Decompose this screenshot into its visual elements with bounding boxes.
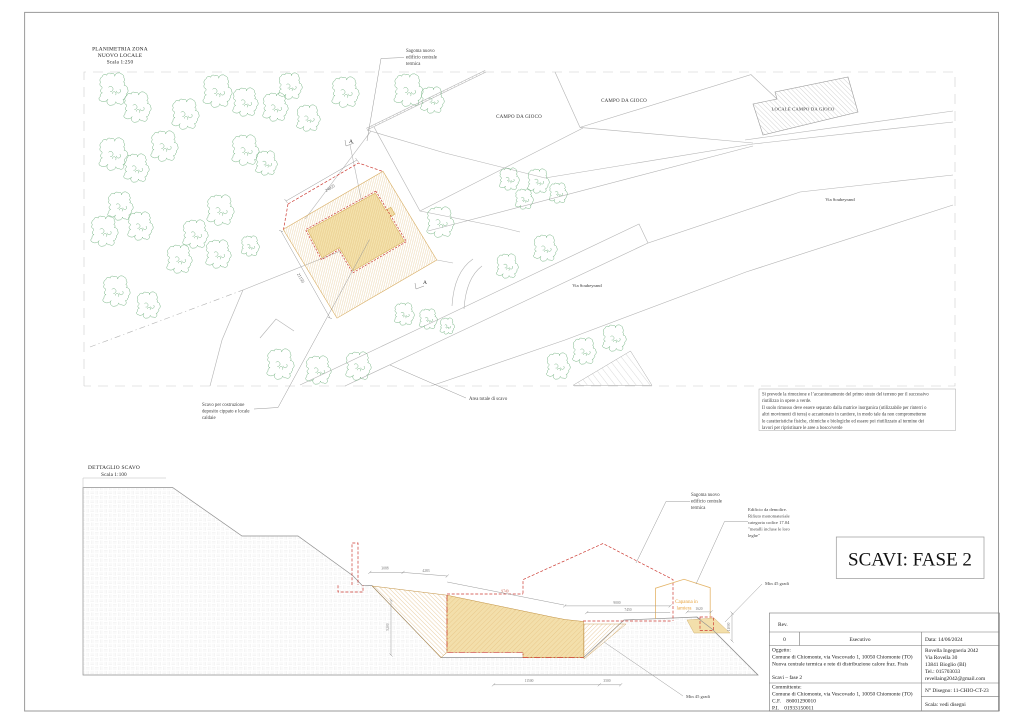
svg-text:Area totale di scavo: Area totale di scavo [469, 397, 508, 402]
svg-text:NUOVO LOCALE: NUOVO LOCALE [98, 53, 143, 59]
svg-text:11000: 11000 [727, 622, 731, 631]
svg-text:Rev.: Rev. [778, 622, 788, 628]
svg-text:Scala 1:100: Scala 1:100 [101, 473, 127, 478]
svg-text:P.I. 01933150011: P.I. 01933150011 [772, 706, 814, 712]
svg-text:Scala: vedi disegni: Scala: vedi disegni [925, 702, 966, 708]
svg-text:4283: 4283 [422, 569, 429, 573]
svg-text:3500: 3500 [603, 679, 610, 683]
svg-text:Min 45 gradi: Min 45 gradi [686, 694, 711, 699]
svg-text:Esecutivo: Esecutivo [849, 637, 871, 643]
svg-text:riutilizzo in opere a verde.: riutilizzo in opere a verde. [762, 399, 811, 404]
svg-text:Comune di Chiomonte, via Vesco: Comune di Chiomonte, via Vescovado 1, 10… [772, 691, 913, 698]
svg-text:C.F. 86001290010: C.F. 86001290010 [772, 699, 816, 705]
svg-text:A: A [423, 280, 427, 286]
svg-text:Min 45 gradi: Min 45 gradi [765, 581, 790, 586]
svg-text:edificio centrale: edificio centrale [406, 56, 437, 61]
svg-text:Data: 14/06/2024: Data: 14/06/2024 [925, 637, 963, 643]
svg-text:Comune di Chiomonte, via Vesco: Comune di Chiomonte, via Vescovado 1, 10… [772, 654, 913, 661]
svg-text:DETTAGLIO SCAVO: DETTAGLIO SCAVO [88, 465, 140, 471]
svg-text:9000: 9000 [613, 601, 620, 605]
svg-text:termica: termica [691, 506, 706, 511]
svg-text:5200: 5200 [386, 623, 390, 630]
svg-text:13841 Bioglio (BI): 13841 Bioglio (BI) [925, 661, 967, 668]
svg-text:Rovella Ingegneria 2042: Rovella Ingegneria 2042 [925, 648, 979, 654]
svg-text:11500: 11500 [525, 679, 534, 683]
svg-text:Capanna in: Capanna in [675, 600, 698, 605]
svg-text:0: 0 [783, 637, 786, 643]
svg-text:revellaing2042@gmail.com: revellaing2042@gmail.com [925, 676, 986, 682]
svg-text:lamiera: lamiera [677, 607, 693, 612]
svg-text:"metalli incluse le loro: "metalli incluse le loro [748, 527, 791, 532]
svg-text:Edificio da demolire.: Edificio da demolire. [748, 507, 787, 512]
svg-text:lavori per ripristinare le are: lavori per ripristinare le aree a bosco/… [762, 426, 842, 431]
svg-text:categoria codice 17.04: categoria codice 17.04 [748, 520, 790, 525]
svg-text:leghe": leghe" [748, 533, 760, 538]
svg-text:1620: 1620 [695, 607, 702, 611]
svg-text:Sagoma nuovo: Sagoma nuovo [406, 49, 435, 54]
svg-text:Nuova centrale termica e rete: Nuova centrale termica e rete di distrib… [772, 661, 908, 668]
svg-text:le caratteristiche fisiche, ch: le caratteristiche fisiche, chimiche e b… [762, 419, 925, 424]
svg-text:LOCALE CAMPO DA GIOCO: LOCALE CAMPO DA GIOCO [771, 107, 835, 112]
svg-text:deposito cippato e locale: deposito cippato e locale [202, 410, 250, 415]
svg-text:CAMPO DA GIOCO: CAMPO DA GIOCO [496, 115, 542, 120]
svg-text:CAMPO DA GIOCO: CAMPO DA GIOCO [601, 99, 647, 104]
svg-text:edificio centrale: edificio centrale [691, 500, 722, 505]
svg-text:Oggetto:: Oggetto: [772, 648, 791, 654]
svg-text:Sagoma nuovo: Sagoma nuovo [691, 493, 720, 498]
svg-text:3088: 3088 [381, 567, 388, 571]
svg-text:Via Soubeyrand: Via Soubeyrand [572, 283, 602, 288]
svg-text:Rifiuto monomateriale: Rifiuto monomateriale [748, 514, 790, 519]
svg-text:Il suolo rimosso deve essere s: Il suolo rimosso deve essere separato da… [762, 406, 927, 411]
svg-text:SCAVI: FASE 2: SCAVI: FASE 2 [848, 550, 972, 571]
svg-text:Tel.: 015703033: Tel.: 015703033 [925, 669, 961, 675]
svg-text:Scavo per costruzione: Scavo per costruzione [202, 403, 244, 408]
svg-text:7450: 7450 [624, 608, 631, 612]
svg-text:termica: termica [406, 62, 421, 67]
svg-text:Scala 1:250: Scala 1:250 [107, 60, 134, 66]
svg-text:PLANIMETRIA ZONA: PLANIMETRIA ZONA [92, 47, 148, 53]
svg-text:Via Rovella 30: Via Rovella 30 [925, 655, 958, 661]
svg-text:caldaie: caldaie [202, 416, 216, 421]
svg-text:Via Soubeyrand: Via Soubeyrand [825, 197, 855, 202]
svg-text:altri movimenti di terra) e ac: altri movimenti di terra) e accantonato … [762, 413, 926, 418]
svg-text:Si prevede la rimozione e l’ac: Si prevede la rimozione e l’accantonamen… [762, 393, 929, 398]
svg-text:N° Disegno: 11-CHIO-CT-23: N° Disegno: 11-CHIO-CT-23 [925, 687, 989, 694]
svg-text:Scavi – fase 2: Scavi – fase 2 [772, 674, 802, 681]
svg-text:Committente:: Committente: [772, 685, 802, 691]
